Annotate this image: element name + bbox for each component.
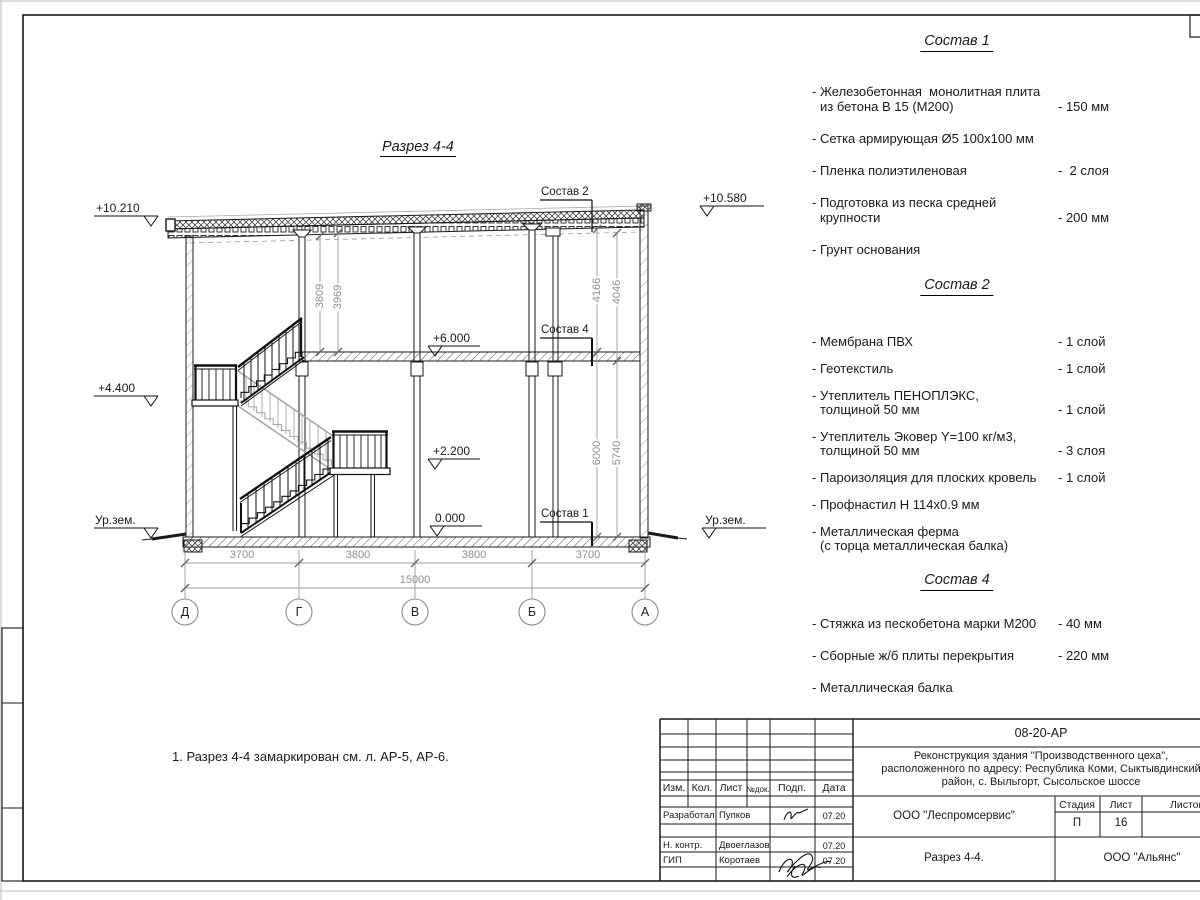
tb-col-kol: Кол. [692,782,713,794]
stairs [192,318,390,537]
ground-slab [183,537,650,547]
comp1-title: Состав 1 [920,33,993,52]
elev-ground-right: Ур.зем. [705,513,746,527]
elev-landing: +2.200 [433,444,470,458]
tb-sheet-title: Разрез 4-4. [924,852,984,864]
elev-right-top: +10.580 [703,191,747,205]
landing-2200 [330,468,390,475]
corner-stamp-box [1190,15,1200,37]
comp4-title: Состав 4 [920,572,993,591]
tb-list-label: Лист [1110,799,1133,811]
columns [293,224,558,537]
hdim-4: 3700 [576,549,600,561]
list-item: - Подготовка из песка среднейкрупности- … [812,195,1157,225]
vdim-4046: 4046 [611,278,623,306]
stair-far-flight [238,371,333,471]
hdim-1: 3700 [230,549,254,561]
list-item: - Геотекстиль- 1 слой [812,362,1157,376]
elev-floor2: +6.000 [433,331,470,345]
tb-role-2: Н. контр. [663,840,702,851]
foundation-right [629,540,647,552]
vdim-3969: 3969 [332,283,344,311]
axis-g: Г [296,605,303,619]
tb-sheet-number: 16 [1115,817,1128,829]
vdim-6000: 6000 [591,439,603,467]
list-item: - Железобетонная монолитная плитаиз бето… [812,84,1157,114]
beam-node [526,362,538,376]
wall-left [186,236,193,537]
leader-sostav2: Состав 2 [541,186,589,198]
tb-col-izm: Изм. [663,782,686,794]
list-item: - Пароизоляция для плоских кровель- 1 сл… [812,471,1157,485]
comp4-list: - Стяжка из пескобетона марки М200- 40 м… [812,616,1157,712]
tb-designer-org: ООО "Леспромсервис" [893,810,1015,822]
tb-col-ndok: №док. [746,785,769,794]
tb-listov-label: Листов [1170,799,1200,811]
tb-col-list: Лист [720,782,743,794]
tb-date-2: 07.20 [823,841,846,851]
tb-name-3: Коротаев [719,855,760,866]
tb-col-data: Дата [822,782,845,794]
drawing-sheet: { "drawing": { "title": "Разрез 4-4", "n… [0,0,1200,900]
tb-name-2: Двоеглазов [719,840,770,851]
tb-project-line1: Реконструкция здания "Производственного … [914,750,1168,762]
list-item: - Грунт основания [812,242,1157,257]
axis-a: А [641,605,649,619]
wall-right [640,206,648,538]
vdim-5740: 5740 [611,439,623,467]
hdim-3: 3800 [462,549,486,561]
roof [166,206,644,243]
roof-beam-node [546,228,560,236]
hdim-total: 15000 [400,574,431,586]
landing-4400 [192,400,238,406]
elev-left-top: +10.210 [96,201,140,215]
elev-zero: 0.000 [435,511,465,525]
elev-left-mid: +4.400 [98,381,135,395]
axis-v: В [411,605,419,619]
list-item: - Сетка армирующая Ø5 100х100 мм [812,131,1157,146]
foundation-left [184,540,202,552]
list-item: - Металлическая балка [812,680,1157,695]
elev-ground-left: Ур.зем. [95,513,136,527]
tb-contractor-org: ООО "Альянс" [1104,852,1181,864]
tb-stage-label: Стадия [1059,799,1095,811]
signature-pupkov [784,809,808,820]
tb-col-podp: Подп. [778,782,806,794]
tb-role-1: Разработал [663,810,715,821]
parapet-cap [637,204,651,211]
list-item: - Металлическая ферма(с торца металличес… [812,525,1157,553]
vdim-4166: 4166 [591,276,603,304]
list-item: - Утеплитель Эковер Y=100 кг/м3,толщиной… [812,430,1157,458]
tb-project-line2: расположенного по адресу: Республика Ком… [881,763,1200,775]
drawing-note: 1. Разрез 4-4 замаркирован см. л. АР-5, … [172,749,449,764]
tb-stage-value: П [1073,817,1081,829]
vdim-3809: 3809 [314,282,326,310]
tb-date-3: 07.20 [823,856,846,866]
beam-node [548,362,562,376]
list-item: - Стяжка из пескобетона марки М200- 40 м… [812,616,1157,631]
beam-node [411,362,423,376]
list-item: - Профнастил Н 114х0.9 мм [812,498,1157,512]
axis-d: Д [181,605,189,619]
tb-name-1: Пупков [719,810,750,821]
floor2-slab [302,352,640,361]
comp2-list: - Мембрана ПВХ- 1 слой - Геотекстиль- 1 … [812,335,1157,566]
comp1-list: - Железобетонная монолитная плитаиз бето… [812,84,1157,274]
leader-sostav1: Состав 1 [541,508,589,520]
list-item: - Утеплитель ПЕНОПЛЭКС,толщиной 50 мм- 1… [812,389,1157,417]
tb-date-1: 07.20 [823,811,846,821]
list-item: - Мембрана ПВХ- 1 слой [812,335,1157,349]
tb-project-line3: район, с. Выльгорт, Сысольское шоссе [942,776,1141,788]
tb-doc-code: 08-20-АР [1015,726,1068,740]
left-margin-stamps [2,628,23,881]
list-item: - Сборные ж/б плиты перекрытия- 220 мм [812,648,1157,663]
tb-role-3: ГИП [663,855,682,866]
hdim-2: 3800 [346,549,370,561]
list-item: - Пленка полиэтиленовая- 2 слоя [812,163,1157,178]
drawing-title: Разрез 4-4 [380,139,456,157]
axis-b: Б [528,605,536,619]
roof-left-end-plate [166,219,175,231]
leader-sostav4: Состав 4 [541,324,589,336]
comp2-title: Состав 2 [920,277,993,296]
